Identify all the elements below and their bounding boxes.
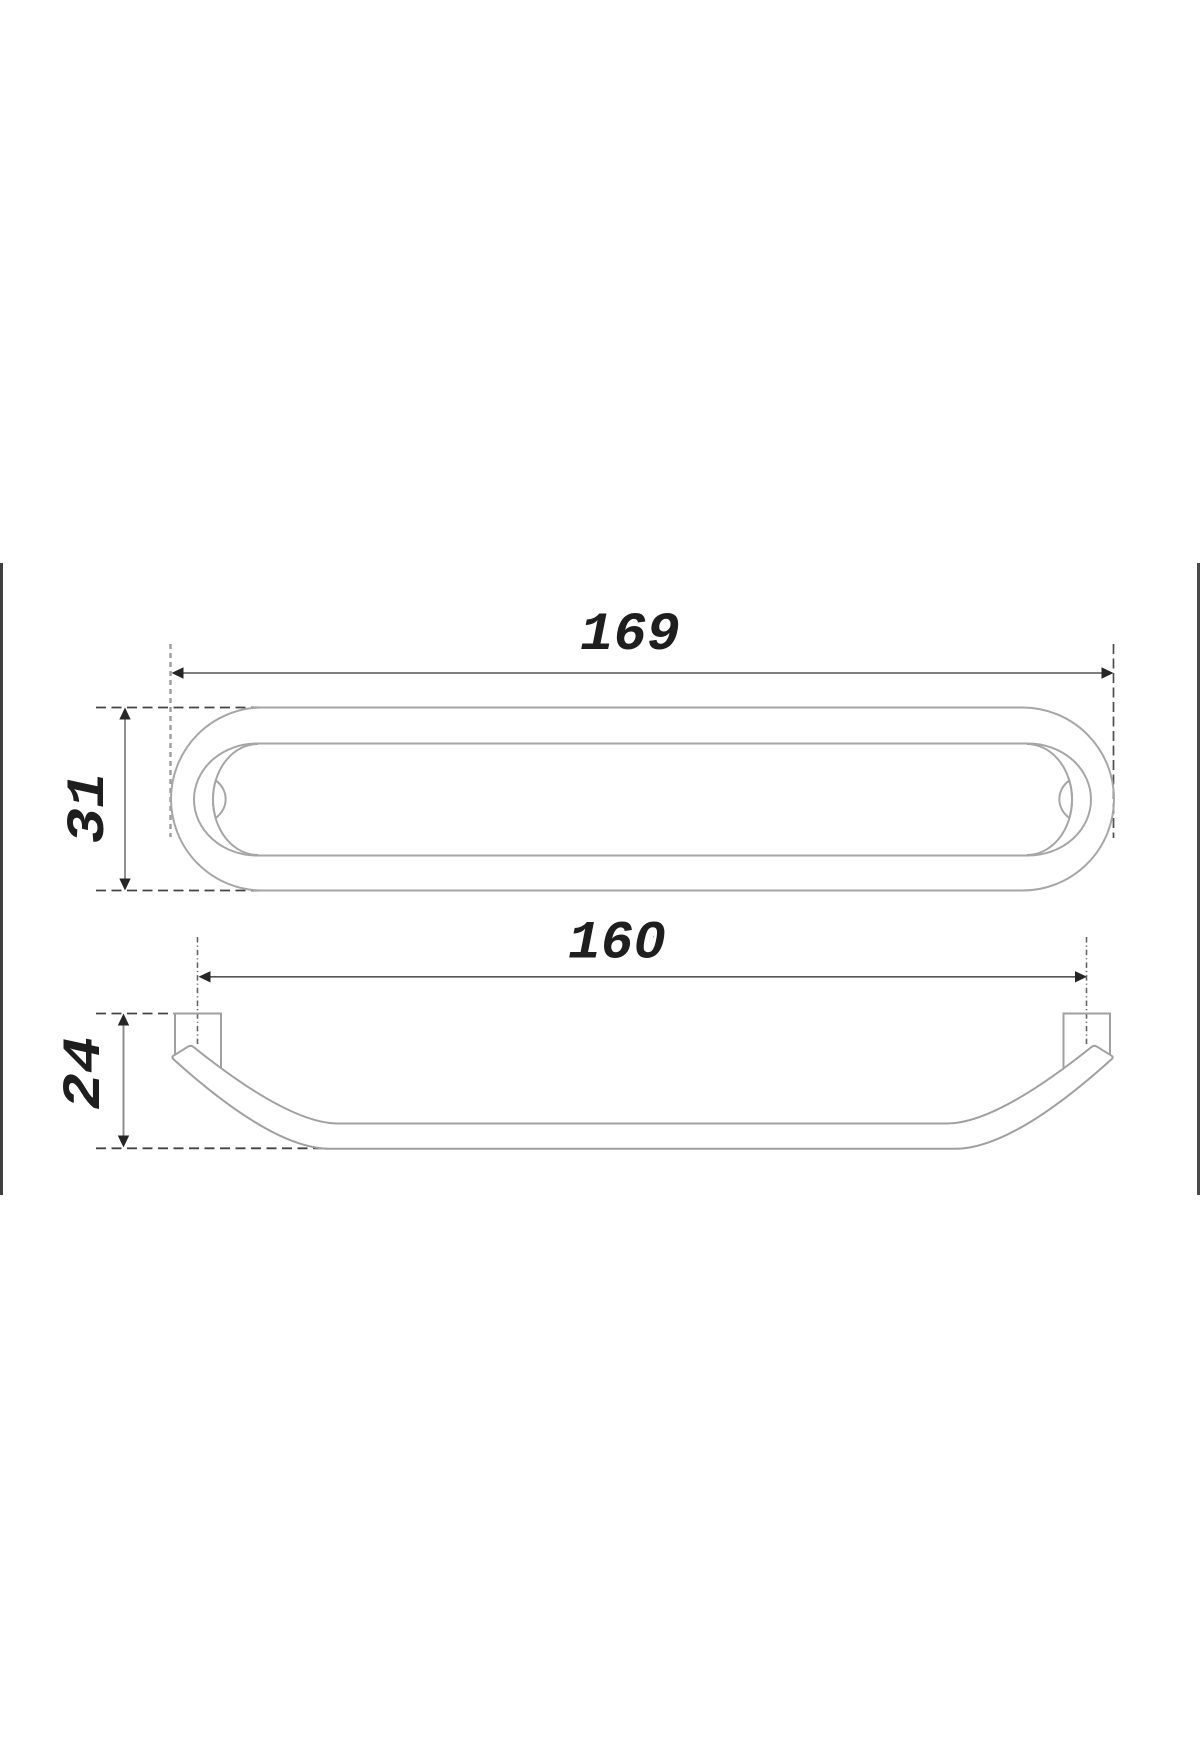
- svg-text:24: 24: [55, 1037, 116, 1110]
- svg-text:169: 169: [580, 605, 680, 666]
- svg-text:31: 31: [59, 773, 120, 844]
